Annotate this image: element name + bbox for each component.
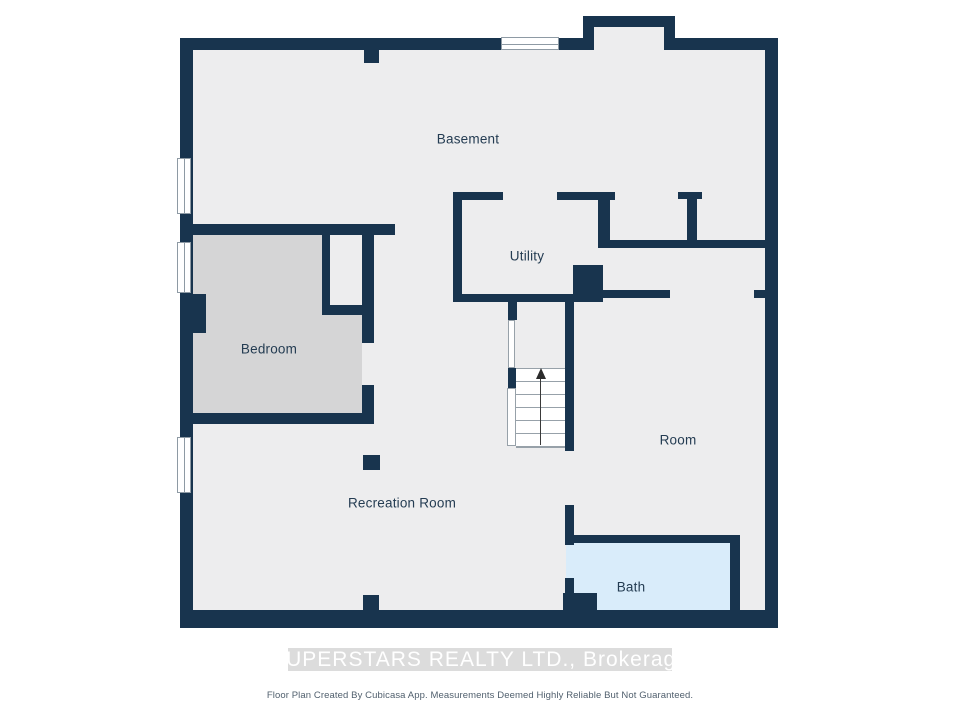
stair-railing xyxy=(508,320,515,368)
wall xyxy=(563,593,597,610)
brokerage-watermark: SUPERSTARS REALTY LTD., Brokerage xyxy=(288,648,672,671)
wall xyxy=(180,294,206,333)
wall xyxy=(598,240,765,248)
disclaimer-text: Floor Plan Created By Cubicasa App. Meas… xyxy=(0,690,960,701)
wall xyxy=(362,224,374,343)
wall xyxy=(453,192,503,200)
closet-bedroom xyxy=(330,235,362,305)
floor-bumpout xyxy=(594,27,664,50)
room-label-basement: Basement xyxy=(437,132,499,147)
wall xyxy=(180,610,778,628)
window xyxy=(177,437,191,493)
wall xyxy=(322,305,362,315)
wall xyxy=(583,16,675,27)
wall xyxy=(453,192,462,302)
wall xyxy=(573,290,670,298)
wall xyxy=(566,535,740,543)
room-label-bath: Bath xyxy=(617,580,646,595)
wall xyxy=(598,192,610,247)
wall xyxy=(453,294,577,302)
wall xyxy=(565,298,574,451)
room-label-room: Room xyxy=(660,433,697,448)
wall xyxy=(675,38,778,50)
stair-direction-line xyxy=(540,378,541,445)
wall xyxy=(193,413,374,424)
wall xyxy=(664,16,675,50)
brokerage-watermark-text: SUPERSTARS REALTY LTD., Brokerage xyxy=(271,648,689,672)
room-label-utility: Utility xyxy=(510,249,544,264)
wall xyxy=(364,50,379,63)
window xyxy=(177,242,191,293)
wall xyxy=(180,38,193,628)
column xyxy=(363,455,380,470)
room-label-bedroom: Bedroom xyxy=(241,342,297,357)
room-label-recreation: Recreation Room xyxy=(348,496,456,511)
wall xyxy=(508,302,517,320)
floor-plan: Basement Utility Bedroom Room Recreation… xyxy=(0,0,960,720)
wall xyxy=(583,16,594,50)
wall xyxy=(363,595,379,610)
wall xyxy=(322,235,330,305)
wall xyxy=(754,290,765,298)
window xyxy=(177,158,191,214)
wall xyxy=(730,535,740,610)
stair-up-arrow-icon xyxy=(536,368,546,379)
window xyxy=(501,37,559,50)
wall xyxy=(765,38,778,628)
wall xyxy=(687,198,697,242)
stair-railing xyxy=(507,388,516,446)
